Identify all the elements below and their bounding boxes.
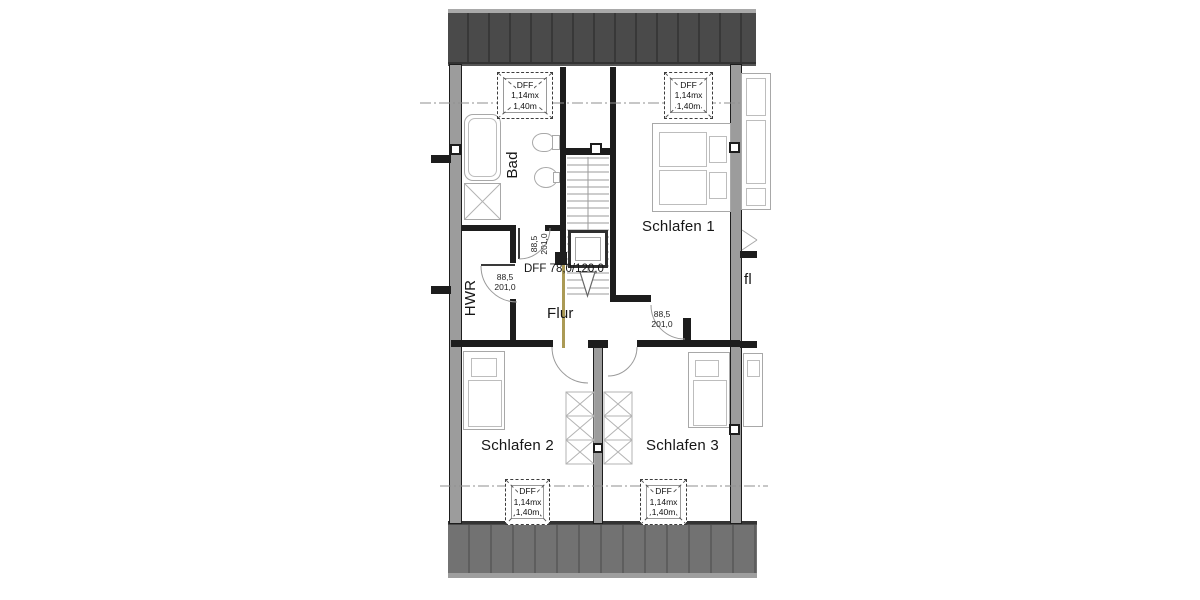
skylight-text: 1,14mx: [649, 497, 679, 508]
bed-schlafen2: [463, 351, 505, 430]
skylight-label: DFF 1,14mx 1,40m: [641, 480, 686, 524]
skylight-text: 1,40m: [512, 101, 538, 112]
neighbor-wall-stub-right-2: [740, 341, 757, 348]
skylight-text: DFF: [516, 80, 535, 91]
room-label-schlafen2: Schlafen 2: [481, 437, 554, 454]
wall-flur-bottom-left: [451, 340, 553, 347]
wall-flur-bottom-right: [637, 340, 740, 347]
neighbor-wall-stub-right-1: [740, 251, 757, 258]
wardrobe-schlafen2: [566, 392, 594, 464]
wall-bad-bottom: [461, 225, 516, 231]
stair-skylight-label: DFF 78,0/120,0: [524, 263, 604, 275]
door-width: 88,5: [488, 272, 522, 282]
wall-junction-marker: [450, 144, 461, 155]
wall-junction-marker: [729, 424, 740, 435]
door-dim-bad: 88,5 201,0: [529, 224, 549, 264]
door-dim-hwr: 88,5 201,0: [488, 272, 522, 292]
room-label-schlafen3: Schlafen 3: [646, 437, 719, 454]
skylight-text: DFF: [518, 486, 537, 497]
pillow: [709, 172, 727, 199]
pillow: [695, 360, 719, 377]
door-height: 201,0: [645, 319, 679, 329]
skylight-text: 1,14mx: [510, 90, 540, 101]
door-arc-schlafen2: [552, 347, 588, 383]
skylight-label: DFF 1,14mx 1,40m: [665, 73, 712, 118]
door-width: 88,5: [529, 224, 539, 264]
wardrobe-schlafen3: [604, 392, 632, 464]
wall-stair-left: [560, 67, 566, 258]
wall-junction-marker: [590, 143, 602, 155]
roof-hatch-top: [448, 13, 756, 64]
toilet: [532, 133, 554, 152]
skylight-text: DFF: [654, 486, 673, 497]
skylight-text: 1,40m: [676, 101, 702, 112]
room-label-schlafen1: Schlafen 1: [642, 218, 715, 235]
door-width: 88,5: [645, 309, 679, 319]
shower: [464, 183, 501, 220]
neighbor-bed-divider: [746, 78, 766, 116]
door-arc-schlafen3: [608, 347, 637, 376]
wall-stair-top: [560, 148, 616, 155]
skylight-text: 1,40m: [515, 507, 541, 518]
neighbor-bed-divider: [746, 120, 766, 184]
pillow: [709, 136, 727, 163]
skylight-bad: DFF 1,14mx 1,40m: [497, 72, 553, 119]
skylight-schlafen2: DFF 1,14mx 1,40m: [505, 479, 550, 525]
room-label-bad: Bad: [503, 140, 523, 190]
wall-schlafen2-3: [593, 347, 603, 524]
skylight-stair-frame: [575, 237, 601, 261]
wall-stair-to-schlafen1: [610, 295, 651, 302]
skylight-text: 1,14mx: [513, 497, 543, 508]
room-label-neighbor-partial: fl: [744, 271, 752, 288]
wall-hwr-right-upper: [510, 225, 516, 263]
wall-stair-right: [610, 67, 616, 302]
skylight-text: 1,40m: [651, 507, 677, 518]
door-height: 201,0: [539, 224, 549, 264]
neighbor-bed-bottom: [743, 353, 763, 427]
skylight-label: DFF 1,14mx 1,40m: [506, 480, 549, 524]
roof-edge-strip-bottom: [448, 573, 757, 578]
eaves-line-top: [448, 64, 756, 66]
room-label-flur: Flur: [547, 305, 574, 322]
mattress: [659, 132, 707, 167]
bed-schlafen3: [688, 352, 730, 428]
bathtub-inner: [468, 118, 497, 177]
mattress: [693, 380, 727, 426]
neighbor-bed-divider: [746, 188, 766, 206]
floor-plan: DFF 1,14mx 1,40m DFF 1,14mx 1,40m DFF 1,…: [0, 0, 1200, 600]
schlafen1-door-post: [683, 318, 691, 341]
double-bed-schlafen1: [652, 123, 731, 212]
mattress: [468, 380, 502, 427]
skylight-schlafen3: DFF 1,14mx 1,40m: [640, 479, 687, 525]
room-label-hwr: HWR: [461, 273, 481, 323]
pillow: [747, 360, 760, 377]
pillow: [471, 358, 497, 377]
skylight-text: 1,14mx: [674, 90, 704, 101]
neighbor-wall-stub-left-1: [431, 155, 451, 163]
bad-door-leaf: [518, 228, 520, 259]
neighbor-bed-top: [741, 73, 771, 210]
wall-junction-marker: [593, 443, 603, 453]
mattress: [659, 170, 707, 205]
sink-tap: [553, 172, 560, 183]
door-height: 201,0: [488, 282, 522, 292]
stair-direction-arrow: [580, 272, 595, 296]
roof-hatch-bottom: [448, 524, 757, 573]
neighbor-wall-stub-left-2: [431, 286, 451, 294]
skylight-schlafen1: DFF 1,14mx 1,40m: [664, 72, 713, 119]
hwr-door-leaf: [481, 264, 515, 266]
door-dim-schlafen1: 88,5 201,0: [645, 309, 679, 329]
toilet-tank: [552, 135, 560, 150]
wall-junction-marker: [729, 142, 740, 153]
bathtub: [464, 114, 501, 181]
neighbor-diagonal-lines: [742, 230, 757, 250]
skylight-label: DFF 1,14mx 1,40m: [498, 73, 552, 118]
skylight-text: DFF: [679, 80, 698, 91]
